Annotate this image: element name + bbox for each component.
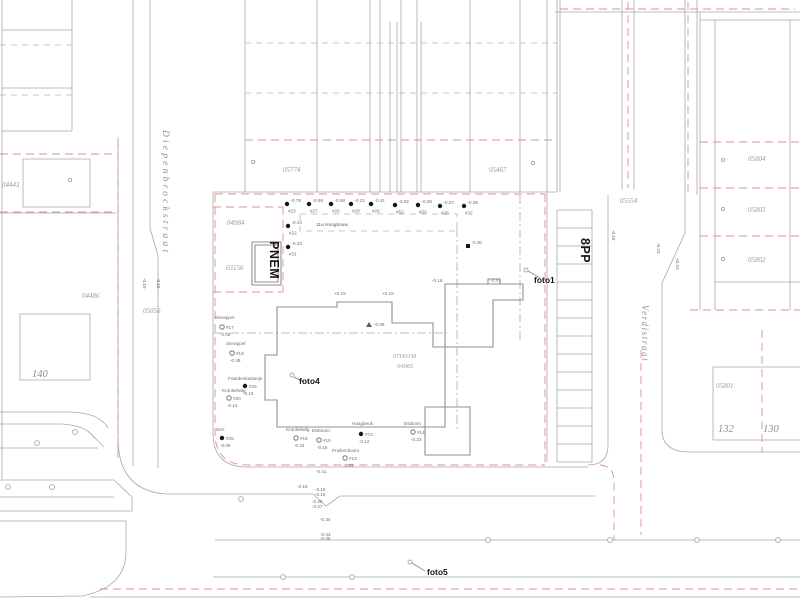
survey-elevation: -0.30 (472, 240, 483, 245)
tree-name: Esdoorn (404, 421, 422, 426)
survey-tag: #22 (289, 231, 297, 236)
survey-dot-icon (286, 224, 290, 228)
tree-elevation: -0.24 (294, 443, 305, 448)
survey-tag: #28 (352, 209, 360, 214)
elevation-mark: -0.19 (142, 278, 147, 289)
elevation-mark: -0.34 (320, 517, 331, 522)
survey-dot-icon (462, 204, 466, 208)
parcel-label: 05804 (748, 155, 766, 163)
tree-name: Den (216, 427, 225, 432)
survey-elevation: -0.58 (335, 198, 346, 203)
survey-tag: #28 (441, 211, 449, 216)
survey-elevation: -0.07 (444, 200, 455, 205)
tree-tag: #13 (349, 456, 357, 461)
tree-tag: #20 (233, 396, 241, 401)
shed-symbol-icon (721, 158, 724, 161)
elevation-mark: -0.41 (316, 469, 327, 474)
survey-tag: #32 (465, 211, 473, 216)
tree-elevation: -0.23 (411, 437, 422, 442)
elevation-mark: +0.16 (382, 291, 394, 296)
survey-dot-icon (369, 202, 373, 206)
parcel-label: 05774 (283, 166, 301, 174)
tree-name: Paardenkastanje (228, 376, 263, 381)
tree-name: Pruikenboom (332, 448, 359, 453)
survey-dot-icon (359, 432, 363, 436)
survey-dot-icon (286, 245, 290, 249)
tree-circle-icon (227, 396, 231, 400)
survey-elevation: -0.06 (422, 199, 433, 204)
tree-tag: #18 (300, 436, 308, 441)
shed-symbol-icon (251, 160, 254, 163)
shed-symbol-icon (68, 178, 71, 181)
tree-tag: #15 (323, 438, 331, 443)
elevation-mark: +0.15 (334, 291, 346, 296)
tree-tag: #25 (226, 436, 234, 441)
map-text-labels: Diepenbrockstraat Verdistraat PNEM 8PP f… (2, 129, 780, 577)
tree-elevation: -0.09 (220, 332, 231, 337)
section-label: 07H01M (393, 353, 417, 360)
survey-dot-icon (220, 436, 224, 440)
tree-circle-icon (230, 351, 234, 355)
survey-dot-icon (349, 202, 353, 206)
foto5-label: foto5 (427, 567, 448, 577)
survey-tag: #29 (372, 209, 380, 214)
parcel-label: 04443 (2, 181, 20, 189)
photo-leader-lines (290, 268, 540, 571)
section-label: 04965 (397, 363, 414, 370)
tree-circle-icon (294, 436, 298, 440)
tree-name: Kronkelwilg (286, 427, 310, 432)
parcel-label: 04486 (82, 292, 100, 300)
survey-points-layer: -0.78#23-0.68#27-0.58#26-0.21#28-0.41#29… (285, 198, 483, 257)
tree-name: Haagbeuk (352, 421, 374, 426)
street-name-verdistraat: Verdistraat (640, 305, 650, 362)
parcel-label: 05467 (489, 166, 507, 174)
shed-symbol-icon (531, 161, 534, 164)
survey-elevation: -0.41 (375, 198, 386, 203)
tree-circle-icon (343, 456, 347, 460)
tree-elevation: -0.49 (230, 358, 241, 363)
main-building-outline (265, 302, 445, 427)
manhole-circles (6, 430, 781, 580)
survey-elevation: -0.33 (292, 241, 303, 246)
tree-name: Sierappel (215, 315, 234, 320)
parcel-label: 05056 (143, 307, 161, 315)
tree-elevation: -0.25 (343, 463, 354, 468)
survey-dot-icon (438, 204, 442, 208)
survey-elevation: -0.02 (399, 199, 410, 204)
elevation-mark: -0.47 (490, 278, 501, 283)
parcel-label: 05554 (620, 197, 638, 205)
tree-tag: #14 (417, 430, 425, 435)
elevation-mark: -0.18 (611, 230, 616, 241)
elevation-mark: -0.36 (320, 536, 331, 541)
tree-tag: #26 (249, 384, 257, 389)
site-plan-drawing: Diepenbrockstraat Verdistraat PNEM 8PP f… (0, 0, 800, 600)
tree-name: Sierappel (226, 341, 245, 346)
parcel-label: 05802 (748, 256, 766, 264)
elevation-mark: -0.16 (315, 492, 326, 497)
survey-elevation: -0.06 (468, 200, 479, 205)
parcel-label: 05803 (748, 206, 766, 214)
tree-elevation: -0.12 (359, 439, 370, 444)
survey-elevation: -0.34 (292, 220, 303, 225)
tree-tag: #72 (365, 432, 373, 437)
building-south-annex (425, 407, 470, 455)
survey-tag: #50 (419, 210, 427, 215)
tree-elevation: -0.14 (227, 403, 238, 408)
elevation-mark: -0.27 (312, 504, 323, 509)
elevation-mark: -0.24 (656, 243, 661, 254)
tree-circle-icon (411, 430, 415, 434)
elevation-mark: -0.15 (156, 278, 161, 289)
tree-tag: #19 (236, 351, 244, 356)
survey-dot-icon (307, 202, 311, 206)
survey-dot-icon (416, 203, 420, 207)
elevation-mark: +0.15 (675, 258, 680, 270)
pnem-label: PNEM (267, 241, 281, 279)
survey-elevation: -0.21 (355, 198, 366, 203)
tree-annotations-layer: Sierappel#17-0.09Sierappel#19-0.49Paarde… (215, 315, 425, 468)
parcel-label: 03156 (226, 264, 244, 272)
parcel-label: 04984 (227, 219, 245, 227)
survey-tag: #52 (396, 210, 404, 215)
street-lines (0, 0, 800, 597)
house-number: 130 (763, 424, 780, 435)
foto4-label: foto4 (299, 376, 320, 386)
building-outlines (252, 242, 523, 455)
survey-tag: #31 (289, 252, 297, 257)
elevation-mark: -0.16 (432, 278, 443, 283)
street-name-diepenbrockstraat: Diepenbrockstraat (160, 129, 170, 255)
tree-elevation: -0.16 (317, 445, 328, 450)
survey-tag: #27 (310, 209, 318, 214)
site-plan-page: Diepenbrockstraat Verdistraat PNEM 8PP f… (0, 0, 800, 600)
survey-tag: #23 (288, 209, 296, 214)
survey-elevation: -0.78 (291, 198, 302, 203)
foto1-label: foto1 (534, 275, 555, 285)
boundary-lines (0, 2, 800, 589)
building-label-hoogbouw: 11a Hoogbouw (316, 222, 348, 228)
survey-dot-icon (329, 202, 333, 206)
shed-symbol-icon (721, 257, 724, 260)
house-number: 132 (718, 424, 735, 435)
survey-dot-icon (285, 202, 289, 206)
tree-circle-icon (220, 325, 224, 329)
tree-tag: #17 (226, 325, 234, 330)
survey-tag: #26 (332, 209, 340, 214)
shed-symbol-icon (721, 207, 724, 210)
house-number: 140 (32, 369, 49, 380)
tree-circle-icon (317, 438, 321, 442)
elevation-mark: -0.09 (374, 322, 385, 327)
survey-elevation: -0.68 (313, 198, 324, 203)
benchmark-triangle-icon (366, 322, 372, 327)
tree-name: Elsboom (312, 428, 330, 433)
utility-dashdot-lines (213, 195, 520, 432)
survey-dot-icon (393, 203, 397, 207)
tree-name: Kronkelwilg (222, 388, 246, 393)
tree-elevation: -0.09 (220, 443, 231, 448)
parcel-label: 05801 (716, 382, 734, 390)
survey-square-icon (466, 244, 470, 248)
parking-8pp-label: 8PP (578, 238, 592, 263)
elevation-mark: -0.19 (297, 484, 308, 489)
